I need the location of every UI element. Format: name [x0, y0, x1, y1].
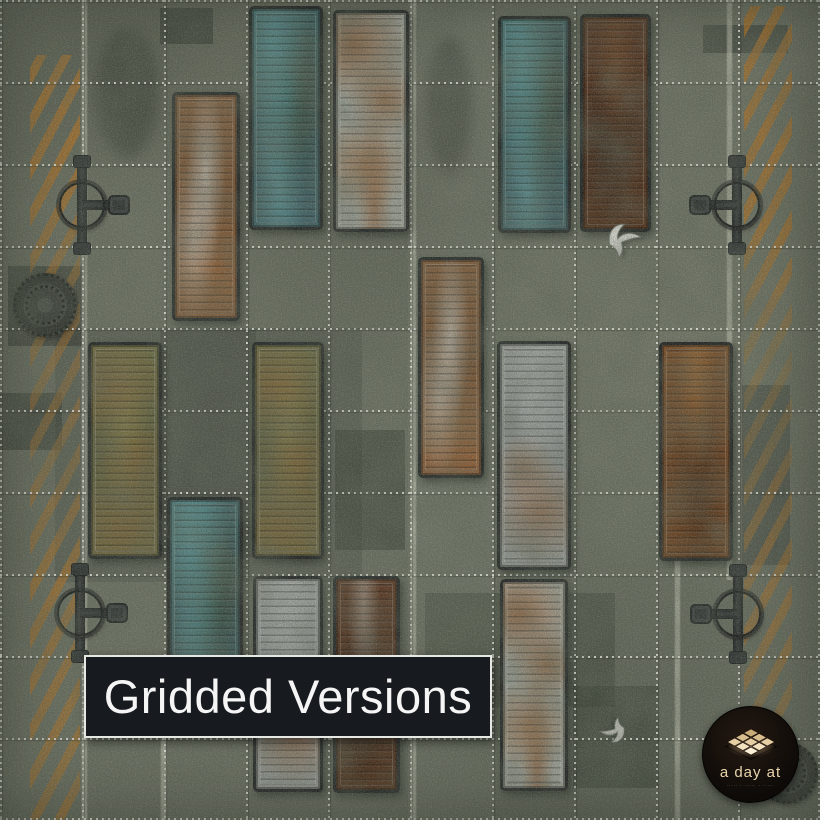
- small-valve-wheel-icon: [690, 604, 712, 624]
- ground-patch: [160, 8, 213, 44]
- small-valve-wheel-icon: [106, 603, 128, 623]
- cargo-container: [172, 92, 240, 321]
- cargo-container: [500, 579, 568, 791]
- ground-patch: [335, 430, 405, 550]
- hazard-stripes: [30, 55, 80, 820]
- stacked-tiles-icon: [722, 721, 780, 763]
- brand-logo: a day at ····· · ····· · ·····: [702, 706, 799, 803]
- cargo-container: [418, 257, 484, 478]
- cargo-container: [333, 10, 409, 232]
- battlemap: Gridded Versions a day at ····· · ····· …: [0, 0, 820, 820]
- brand-tagline: ····· · ····· · ·····: [726, 783, 774, 788]
- ground-patch: [425, 35, 473, 175]
- valve-wheel-icon: [57, 590, 103, 636]
- grid-line: [738, 0, 740, 820]
- cargo-container: [249, 6, 323, 230]
- small-valve-wheel-icon: [689, 195, 711, 215]
- valve-wheel-icon: [714, 182, 760, 228]
- banner: Gridded Versions: [84, 655, 492, 738]
- cargo-container: [498, 16, 571, 233]
- lane-marking: [160, 738, 167, 820]
- ground-patch: [96, 28, 160, 158]
- cargo-container: [497, 341, 571, 570]
- cargo-container: [659, 342, 733, 561]
- lane-marking: [674, 560, 681, 820]
- cargo-container: [88, 342, 162, 559]
- cargo-container: [252, 342, 324, 559]
- pipe-flange: [729, 564, 747, 577]
- pipe-flange: [73, 155, 91, 168]
- cargo-container: [580, 14, 651, 232]
- banner-label: Gridded Versions: [104, 669, 473, 724]
- valve-wheel-icon: [59, 182, 105, 228]
- pipe-flange: [729, 651, 747, 664]
- pipe-flange: [728, 242, 746, 255]
- pipe-flange: [73, 242, 91, 255]
- manhole-cover: [13, 273, 77, 337]
- valve-wheel-icon: [715, 591, 761, 637]
- brand-name: a day at: [720, 764, 781, 781]
- pipe-flange: [728, 155, 746, 168]
- pipe-flange: [71, 563, 89, 576]
- small-valve-wheel-icon: [108, 195, 130, 215]
